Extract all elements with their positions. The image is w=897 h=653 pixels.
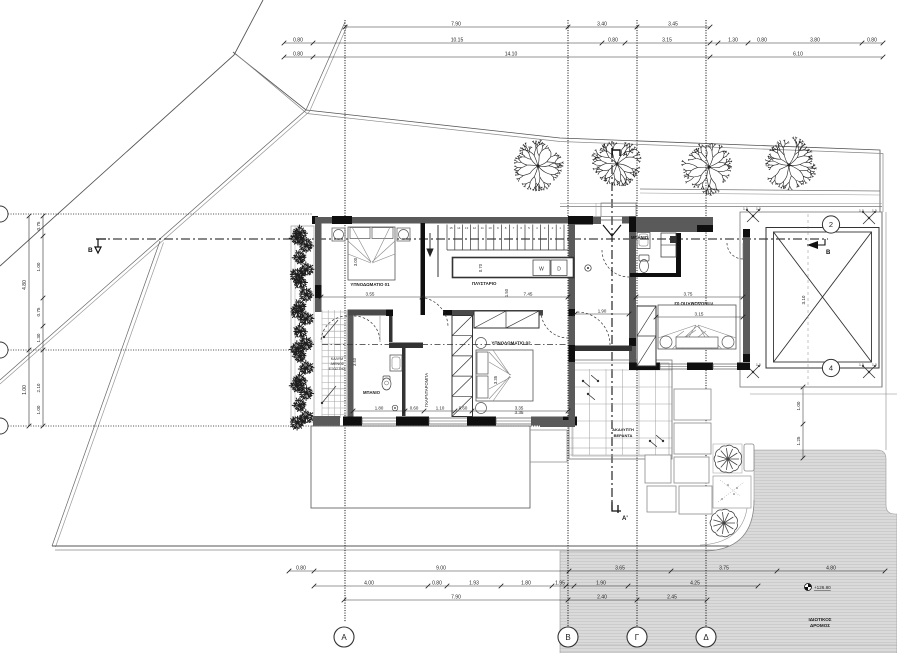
svg-text:3.35: 3.35 bbox=[515, 406, 524, 411]
svg-text:1.0: 1.0 bbox=[872, 209, 877, 213]
svg-text:1.0: 1.0 bbox=[756, 363, 761, 367]
svg-text:ΑΚΑΛΥΠΤΗ: ΑΚΑΛΥΠΤΗ bbox=[612, 427, 634, 432]
svg-text:2.10: 2.10 bbox=[36, 383, 41, 392]
svg-text:10: 10 bbox=[488, 226, 492, 230]
svg-text:3.15: 3.15 bbox=[695, 312, 704, 317]
svg-text:2.40: 2.40 bbox=[597, 595, 607, 601]
svg-text:3.40: 3.40 bbox=[597, 22, 607, 28]
svg-text:1.25: 1.25 bbox=[796, 436, 801, 445]
svg-text:2: 2 bbox=[829, 220, 833, 229]
svg-text:1.90: 1.90 bbox=[596, 581, 606, 587]
svg-text:11: 11 bbox=[481, 226, 484, 230]
svg-text:4.25: 4.25 bbox=[690, 581, 700, 587]
svg-text:0.60: 0.60 bbox=[410, 406, 419, 411]
svg-text:Γ: Γ bbox=[635, 633, 640, 642]
svg-text:ΜΠΑΝΙΟ: ΜΠΑΝΙΟ bbox=[363, 390, 381, 395]
svg-text:1.0: 1.0 bbox=[859, 363, 864, 367]
svg-text:A: A bbox=[623, 151, 628, 158]
svg-text:4.00: 4.00 bbox=[364, 581, 374, 587]
svg-text:4.80: 4.80 bbox=[22, 280, 28, 290]
svg-text:W: W bbox=[539, 267, 544, 273]
svg-text:3.65: 3.65 bbox=[615, 566, 625, 572]
svg-text:0.70: 0.70 bbox=[478, 263, 483, 272]
svg-text:13: 13 bbox=[465, 226, 469, 230]
svg-text:7.90: 7.90 bbox=[451, 595, 461, 601]
svg-text:12: 12 bbox=[473, 226, 477, 230]
svg-text:3.55: 3.55 bbox=[366, 292, 375, 297]
svg-text:-ΜΕΝΟΣ: -ΜΕΝΟΣ bbox=[330, 362, 345, 366]
svg-text:1.80: 1.80 bbox=[521, 581, 531, 587]
svg-text:ΜΠΑΝΙΟ: ΜΠΑΝΙΟ bbox=[631, 235, 649, 240]
svg-text:B: B bbox=[826, 250, 831, 256]
svg-text:9.00: 9.00 bbox=[436, 566, 446, 572]
svg-text:0.75: 0.75 bbox=[36, 307, 41, 316]
svg-text:ΕΞΩΣΤΗΣ: ΕΞΩΣΤΗΣ bbox=[329, 367, 346, 371]
svg-text:3.80: 3.80 bbox=[810, 38, 820, 44]
svg-text:ΚΑΛΥΜ: ΚΑΛΥΜ bbox=[331, 357, 343, 361]
svg-text:0.80: 0.80 bbox=[293, 38, 303, 44]
svg-text:1.0: 1.0 bbox=[756, 207, 761, 211]
svg-text:1.10: 1.10 bbox=[436, 406, 445, 411]
svg-text:1.00: 1.00 bbox=[36, 262, 41, 271]
svg-text:3.15: 3.15 bbox=[662, 38, 672, 44]
svg-text:1.0: 1.0 bbox=[872, 363, 877, 367]
svg-text:3.35: 3.35 bbox=[493, 375, 498, 384]
svg-text:D: D bbox=[557, 267, 561, 273]
svg-text:A: A bbox=[341, 633, 347, 642]
svg-text:7.45: 7.45 bbox=[524, 292, 533, 297]
svg-text:0.60: 0.60 bbox=[459, 406, 468, 411]
svg-text:1.0: 1.0 bbox=[859, 209, 864, 213]
svg-text:1.00: 1.00 bbox=[22, 385, 28, 395]
svg-text:1.30: 1.30 bbox=[728, 38, 738, 44]
svg-text:A': A' bbox=[622, 516, 628, 522]
svg-text:Δ: Δ bbox=[703, 633, 709, 642]
svg-text:4: 4 bbox=[829, 364, 833, 373]
svg-text:1.00: 1.00 bbox=[796, 401, 801, 410]
svg-text:1.50: 1.50 bbox=[504, 288, 509, 297]
svg-text:3.10: 3.10 bbox=[801, 295, 806, 304]
svg-text:14: 14 bbox=[457, 226, 461, 230]
svg-text:3.75: 3.75 bbox=[719, 566, 729, 572]
svg-text:3.75: 3.75 bbox=[684, 292, 693, 297]
svg-text:0.80: 0.80 bbox=[432, 581, 442, 587]
svg-text:ΠΛΥΣΤΑΡΙΟ: ΠΛΥΣΤΑΡΙΟ bbox=[472, 281, 497, 286]
svg-text:0.80: 0.80 bbox=[867, 38, 877, 44]
svg-text:1.93: 1.93 bbox=[469, 581, 479, 587]
svg-text:7.90: 7.90 bbox=[451, 22, 461, 28]
svg-text:ΒΕΡΑΝΤΑ: ΒΕΡΑΝΤΑ bbox=[614, 433, 633, 438]
svg-text:B: B bbox=[88, 247, 93, 254]
svg-text:14.10: 14.10 bbox=[505, 52, 518, 58]
svg-text:2.45: 2.45 bbox=[667, 595, 677, 601]
svg-text:3.40: 3.40 bbox=[352, 357, 357, 366]
svg-text:0.80: 0.80 bbox=[293, 52, 303, 58]
svg-text:ΔΡΟΜΟΣ: ΔΡΟΜΟΣ bbox=[810, 623, 830, 628]
svg-text:4.80: 4.80 bbox=[826, 566, 836, 572]
svg-text:0.80: 0.80 bbox=[608, 38, 618, 44]
svg-text:1.90: 1.90 bbox=[598, 309, 607, 314]
svg-text:3.00: 3.00 bbox=[353, 257, 358, 266]
svg-text:10.15: 10.15 bbox=[451, 38, 464, 44]
svg-text:6.10: 6.10 bbox=[793, 52, 803, 58]
svg-text:ΓΚΑΡΝΤΑΡΟΜΠΑ: ΓΚΑΡΝΤΑΡΟΜΠΑ bbox=[424, 373, 429, 407]
svg-text:1.95: 1.95 bbox=[555, 581, 565, 587]
svg-text:1.00: 1.00 bbox=[36, 405, 41, 414]
svg-text:+126.80: +126.80 bbox=[814, 585, 831, 590]
svg-text:15: 15 bbox=[449, 226, 453, 230]
svg-text:1.0: 1.0 bbox=[743, 207, 748, 211]
svg-text:B: B bbox=[565, 633, 570, 642]
svg-text:ΥΠΝΟΔΩΜΑΤΙΟ 01: ΥΠΝΟΔΩΜΑΤΙΟ 01 bbox=[350, 282, 390, 287]
svg-text:0.80: 0.80 bbox=[296, 566, 306, 572]
svg-text:1.30: 1.30 bbox=[36, 333, 41, 342]
svg-text:ΙΔΙΩΤΙΚΟΣ: ΙΔΙΩΤΙΚΟΣ bbox=[808, 617, 831, 622]
svg-text:1.80: 1.80 bbox=[375, 406, 384, 411]
svg-text:0.75: 0.75 bbox=[36, 221, 41, 230]
svg-text:0.80: 0.80 bbox=[757, 38, 767, 44]
svg-text:3.45: 3.45 bbox=[668, 22, 678, 28]
